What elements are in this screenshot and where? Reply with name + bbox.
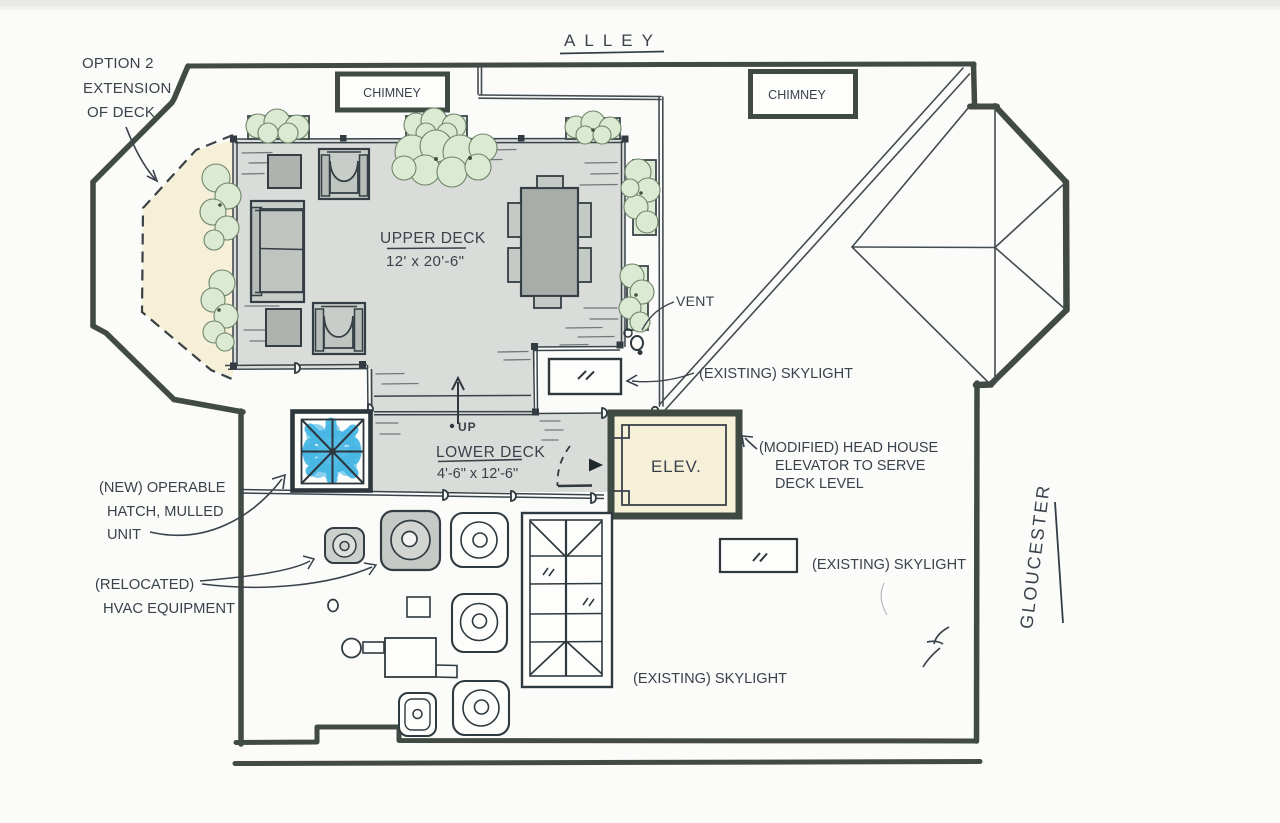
svg-text:UP: UP <box>458 420 477 434</box>
svg-text:EXTENSION: EXTENSION <box>83 80 171 97</box>
svg-text:(RELOCATED): (RELOCATED) <box>95 577 194 593</box>
svg-text:12' x 20'-6": 12' x 20'-6" <box>386 253 464 270</box>
svg-text:HATCH, MULLED: HATCH, MULLED <box>107 504 224 520</box>
svg-text:CHIMNEY: CHIMNEY <box>363 86 421 100</box>
svg-text:ELEV.: ELEV. <box>651 457 702 476</box>
svg-text:DECK LEVEL: DECK LEVEL <box>775 476 864 492</box>
svg-text:(EXISTING) SKYLIGHT: (EXISTING) SKYLIGHT <box>633 671 787 687</box>
svg-text:4'-6" x 12'-6": 4'-6" x 12'-6" <box>437 466 518 482</box>
svg-text:(EXISTING) SKYLIGHT: (EXISTING) SKYLIGHT <box>812 557 966 573</box>
svg-text:CHIMNEY: CHIMNEY <box>768 88 826 102</box>
svg-text:ALLEY: ALLEY <box>564 31 662 50</box>
svg-text:UNIT: UNIT <box>107 527 141 543</box>
svg-text:VENT: VENT <box>676 293 715 309</box>
svg-text:OF DECK: OF DECK <box>87 104 155 121</box>
svg-text:HVAC EQUIPMENT: HVAC EQUIPMENT <box>103 601 235 617</box>
svg-text:OPTION 2: OPTION 2 <box>82 55 154 72</box>
svg-text:(EXISTING) SKYLIGHT: (EXISTING) SKYLIGHT <box>699 366 853 382</box>
svg-text:LOWER DECK: LOWER DECK <box>436 444 545 461</box>
svg-text:UPPER DECK: UPPER DECK <box>380 230 486 247</box>
svg-text:(MODIFIED) HEAD HOUSE: (MODIFIED) HEAD HOUSE <box>759 440 938 456</box>
svg-text:(NEW) OPERABLE: (NEW) OPERABLE <box>99 480 226 496</box>
svg-text:ELEVATOR TO SERVE: ELEVATOR TO SERVE <box>775 458 925 474</box>
